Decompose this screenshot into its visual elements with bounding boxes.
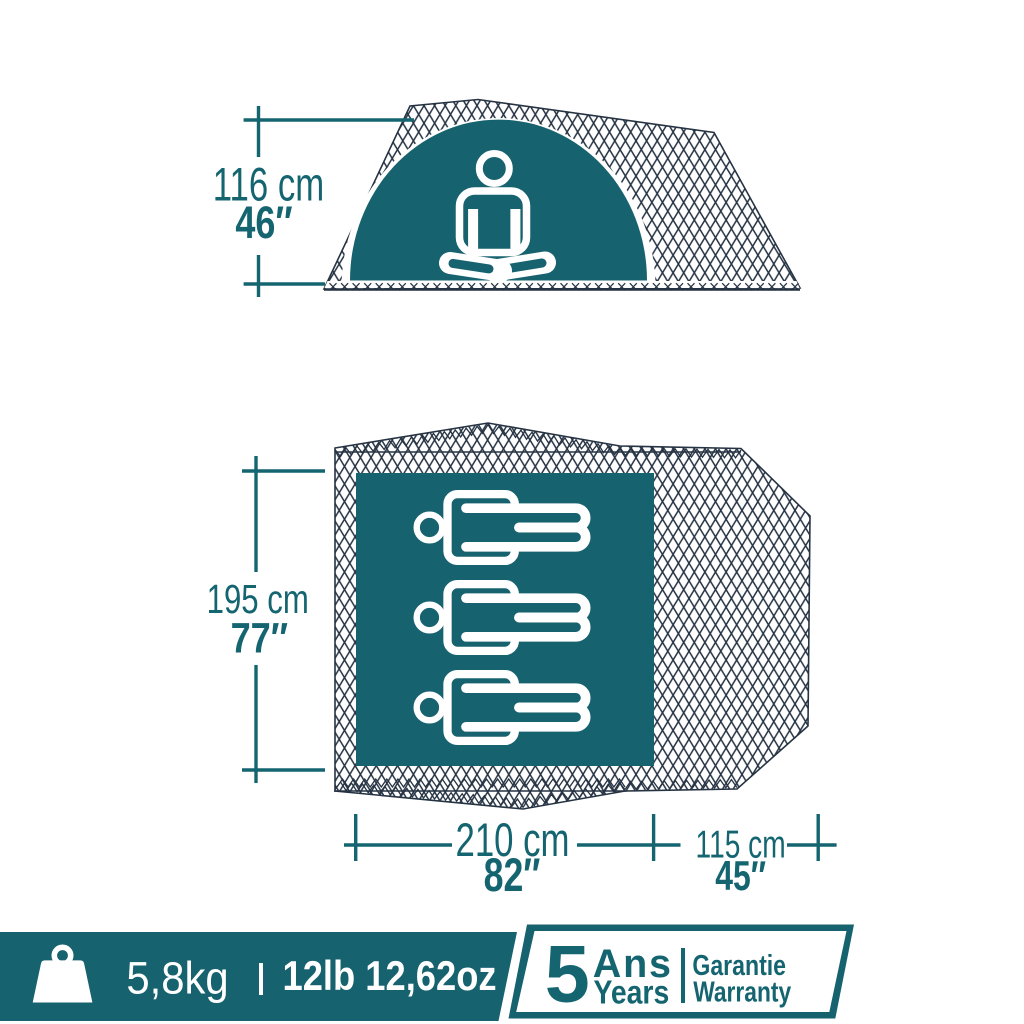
svg-text:Warranty: Warranty	[693, 977, 792, 1008]
svg-text:12lb 12,62oz: 12lb 12,62oz	[283, 954, 497, 1000]
svg-text:77″: 77″	[231, 615, 288, 663]
svg-text:82″: 82″	[484, 848, 541, 901]
svg-text:5: 5	[545, 930, 590, 1020]
svg-text:45″: 45″	[715, 852, 766, 899]
svg-text:Years: Years	[594, 973, 670, 1011]
svg-text:5,8kg: 5,8kg	[126, 954, 228, 1004]
svg-text:46″: 46″	[235, 197, 292, 248]
